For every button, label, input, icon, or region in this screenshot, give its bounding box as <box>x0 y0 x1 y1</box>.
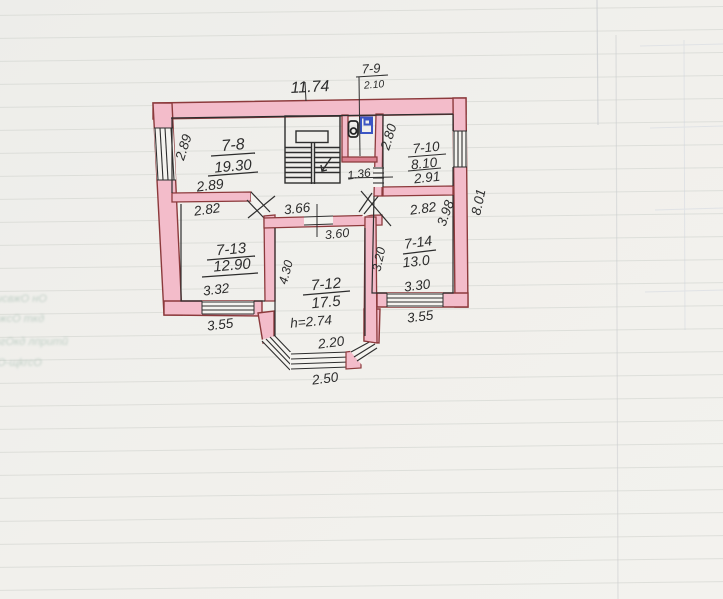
svg-text:17.5: 17.5 <box>311 293 342 313</box>
svg-text:тжсО ткд: тжсО ткд <box>0 313 44 325</box>
svg-text:13.0: 13.0 <box>402 252 431 271</box>
svg-text:11.74: 11.74 <box>290 78 330 97</box>
svg-text:7-10: 7-10 <box>412 139 441 157</box>
svg-text:3.66: 3.66 <box>283 200 311 218</box>
svg-text:12.90: 12.90 <box>213 255 253 275</box>
svg-text:шО-щkrcО: шО-щkrcО <box>0 357 42 369</box>
svg-text:нгОкд лпритй: нгОкд лпритй <box>0 336 68 348</box>
svg-text:2.91: 2.91 <box>412 169 441 187</box>
svg-text:ысвжО нО: ысвжО нО <box>0 293 47 305</box>
svg-text:3.60: 3.60 <box>324 226 350 242</box>
svg-text:7-8: 7-8 <box>221 136 246 155</box>
svg-text:2.10: 2.10 <box>362 78 384 91</box>
svg-text:7-9: 7-9 <box>361 60 381 76</box>
svg-text:7-12: 7-12 <box>310 275 342 295</box>
